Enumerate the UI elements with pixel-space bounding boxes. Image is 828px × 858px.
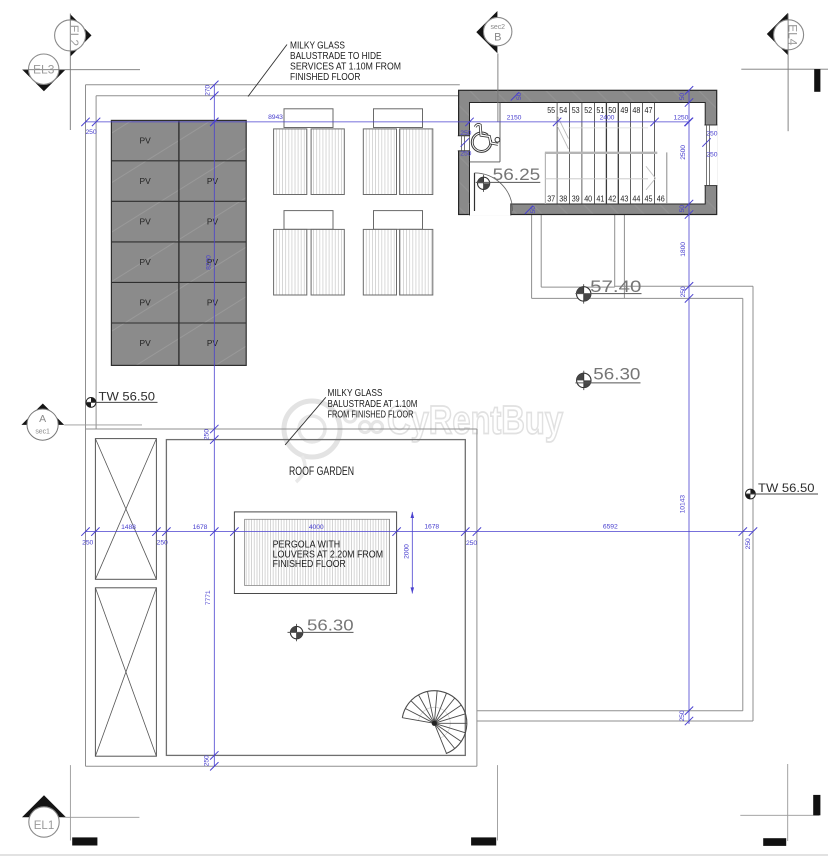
svg-text:57.40: 57.40 [590,278,641,296]
svg-text:sec1: sec1 [35,429,50,436]
svg-text:EL3: EL3 [33,62,55,76]
svg-text:38: 38 [559,194,567,204]
svg-text:FINISHED FLOOR: FINISHED FLOOR [290,72,360,83]
svg-text:EL4: EL4 [786,24,800,46]
svg-text:48: 48 [632,105,640,115]
svg-text:250: 250 [706,131,717,138]
svg-text:EL1: EL1 [34,820,54,832]
svg-text:FROM FINISHED FLOOR: FROM FINISHED FLOOR [328,409,414,420]
svg-text:FINISHED FLOOR: FINISHED FLOOR [273,559,346,570]
svg-text:PV: PV [140,136,152,146]
svg-text:BALUSTRADE TO HIDE: BALUSTRADE TO HIDE [290,51,382,62]
svg-text:250: 250 [204,429,211,440]
svg-text:250: 250 [85,129,96,136]
svg-text:39: 39 [572,194,580,204]
svg-text:43: 43 [620,194,628,204]
svg-text:250: 250 [203,755,210,766]
svg-text:PV: PV [207,217,219,227]
svg-text:250: 250 [82,540,93,547]
svg-text:55: 55 [547,105,555,115]
svg-text:7771: 7771 [205,590,212,605]
svg-text:53: 53 [572,105,580,115]
svg-text:PV: PV [207,338,219,348]
svg-text:250: 250 [460,150,471,157]
svg-text:8943: 8943 [268,114,283,121]
svg-text:TW 56.50: TW 56.50 [99,392,156,404]
svg-text:250: 250 [680,286,687,297]
svg-text:1488: 1488 [121,524,136,531]
svg-text:PV: PV [140,217,152,227]
svg-text:2150: 2150 [507,114,522,121]
svg-text:250: 250 [157,540,168,547]
svg-text:PV: PV [140,338,152,348]
svg-text:56.30: 56.30 [307,618,354,635]
svg-text:PV: PV [207,298,219,308]
svg-text:A: A [39,413,46,425]
svg-text:46: 46 [657,194,665,204]
svg-text:ROOF GARDEN: ROOF GARDEN [289,464,354,478]
svg-text:SERVICES AT 1.10M FROM: SERVICES AT 1.10M FROM [290,61,401,72]
svg-text:42: 42 [608,194,616,204]
svg-text:EL2: EL2 [67,25,81,47]
svg-text:56.25: 56.25 [493,166,541,184]
svg-text:2500: 2500 [680,145,687,160]
svg-text:10143: 10143 [680,495,687,514]
svg-text:PV: PV [140,298,152,308]
svg-text:50: 50 [679,205,686,213]
svg-text:250: 250 [745,538,752,549]
svg-text:50: 50 [516,92,523,100]
svg-text:PV: PV [140,176,152,186]
svg-text:BALUSTRADE AT 1.10M: BALUSTRADE AT 1.10M [328,399,418,410]
svg-text:1678: 1678 [424,523,439,530]
svg-text:B: B [494,32,501,44]
svg-text:2400: 2400 [600,114,615,121]
svg-text:8220: 8220 [206,255,213,270]
svg-text:250: 250 [460,130,471,137]
svg-text:TW 56.50: TW 56.50 [758,483,815,495]
svg-text:MILKY GLASS: MILKY GLASS [290,41,345,52]
svg-text:250: 250 [706,151,717,158]
svg-text:2000: 2000 [404,544,411,559]
svg-text:41: 41 [596,194,604,204]
svg-text:50: 50 [679,93,686,101]
svg-text:6592: 6592 [603,524,618,531]
svg-text:1678: 1678 [193,524,208,531]
svg-text:270: 270 [204,85,211,96]
svg-text:PV: PV [140,257,152,267]
svg-text:44: 44 [632,194,640,204]
svg-text:1250: 1250 [674,115,689,122]
svg-text:PV: PV [207,176,219,186]
svg-text:1800: 1800 [680,242,687,257]
svg-text:45: 45 [645,194,653,204]
svg-text:40: 40 [584,194,592,204]
svg-text:54: 54 [559,105,567,115]
svg-text:37: 37 [547,194,555,204]
svg-text:56.30: 56.30 [593,365,640,383]
svg-text:50: 50 [530,206,537,214]
svg-text:MILKY GLASS: MILKY GLASS [328,388,383,399]
svg-text:47: 47 [645,105,653,115]
svg-text:49: 49 [620,105,628,115]
svg-text:250: 250 [679,710,686,721]
svg-text:sec2: sec2 [491,24,506,31]
svg-text:250: 250 [466,540,477,547]
svg-text:4000: 4000 [309,524,324,531]
svg-text:52: 52 [584,105,592,115]
